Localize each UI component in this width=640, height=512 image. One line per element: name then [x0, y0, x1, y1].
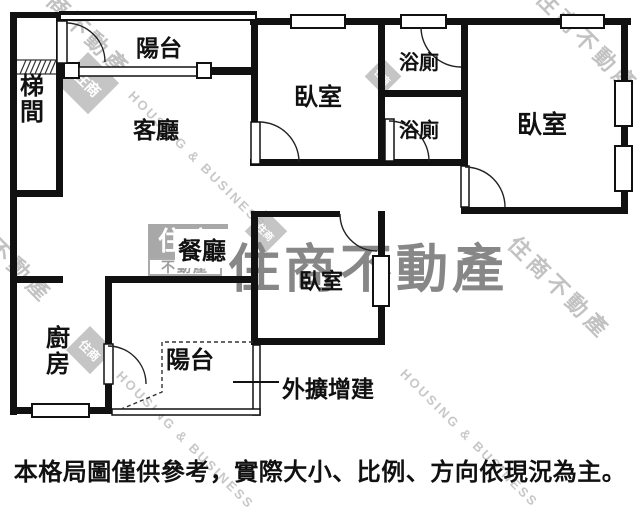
disclaimer-text: 本格局圖僅供參考，實際大小、比例、方向依現況為主。 [0, 452, 640, 487]
room-label-balcony-top: 陽台 [136, 29, 182, 63]
room-label-bedroom-right: 臥室 [517, 105, 567, 141]
annex-note-label: 外擴增建 [282, 370, 374, 404]
room-label-bedroom-bottom: 臥室 [299, 264, 343, 296]
room-label-balcony-bottom: 陽台 [166, 340, 214, 375]
room-label-bathroom-upper: 浴廁 [399, 46, 439, 75]
room-label-kitchen: 廚房 [46, 326, 74, 378]
room-labels-layer: 梯間 陽台 客廳 臥室 浴廁 浴廁 臥室 餐廳 臥室 廚房 陽台 外擴增建 本格… [0, 0, 640, 495]
floorplan-page: { "floorplan": { "labels": { "stairwell"… [0, 0, 640, 495]
room-label-living-room: 客廳 [133, 111, 179, 145]
room-label-bathroom-lower: 浴廁 [399, 114, 439, 143]
room-label-dining-room: 餐廳 [175, 229, 229, 268]
room-label-bedroom-top: 臥室 [294, 77, 342, 112]
room-label-stairwell: 梯間 [20, 74, 48, 126]
